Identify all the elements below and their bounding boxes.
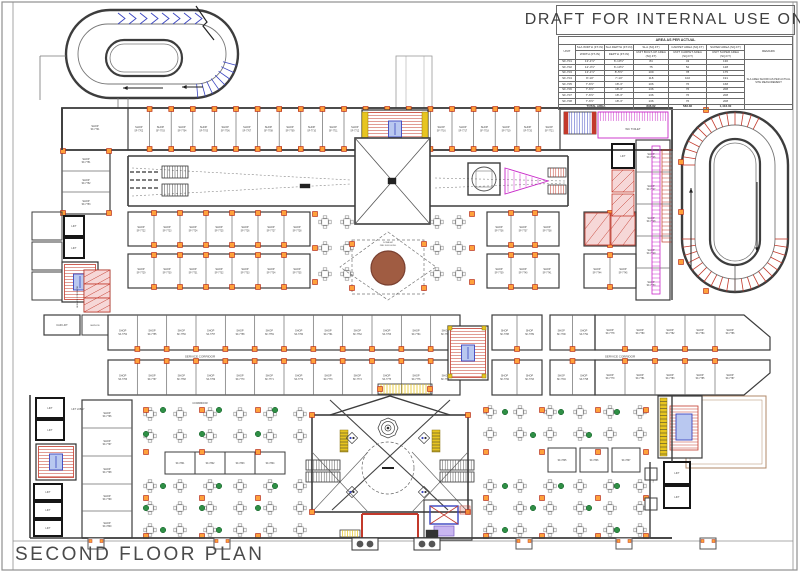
tiny-label: SF-7780 bbox=[636, 333, 646, 335]
column-marker bbox=[450, 107, 455, 112]
dining-table bbox=[608, 524, 612, 526]
column-marker bbox=[514, 147, 519, 152]
tiny-label: SF-7725 bbox=[215, 230, 225, 232]
dining-table bbox=[345, 252, 349, 254]
lower-atrium bbox=[306, 396, 474, 540]
dining-table bbox=[547, 431, 553, 437]
dining-table bbox=[584, 432, 586, 436]
dining-table bbox=[608, 416, 612, 418]
tiny-label: SF-7779 bbox=[606, 378, 616, 380]
tiny-label: SF-7798 bbox=[103, 472, 113, 474]
fixture-dot bbox=[349, 437, 351, 439]
tiny-label: LIFT bbox=[620, 155, 626, 158]
tiny-label: SF-7726 bbox=[241, 230, 251, 232]
tiny-label: SHOP bbox=[543, 267, 551, 271]
column-marker bbox=[282, 253, 287, 258]
fixture-dot bbox=[349, 491, 351, 493]
column-marker bbox=[596, 450, 601, 455]
tiny-label: SHOP bbox=[593, 267, 601, 271]
tiny-label: SHOP bbox=[148, 374, 156, 378]
dining-table bbox=[319, 246, 321, 250]
column-marker bbox=[200, 408, 205, 413]
tiny-label: LIFT LOBBY bbox=[72, 409, 85, 411]
column-marker bbox=[256, 285, 261, 290]
dining-table bbox=[638, 512, 642, 514]
column-marker bbox=[679, 160, 684, 165]
tiny-label: SHOP bbox=[200, 125, 208, 129]
tiny-label: LIFT bbox=[674, 472, 680, 475]
column-marker bbox=[135, 347, 140, 352]
dining-table bbox=[548, 416, 552, 418]
dining-table bbox=[234, 506, 236, 510]
bottom-left-tower: LIFTLIFTLIFT LOBBYLIFTLIFTLIFT bbox=[30, 395, 85, 538]
dining-table bbox=[456, 219, 462, 225]
tiny-label: SHOP bbox=[265, 125, 273, 129]
dining-table bbox=[208, 430, 212, 432]
column-marker bbox=[653, 359, 658, 364]
column-marker bbox=[194, 347, 199, 352]
dining-table bbox=[518, 480, 522, 482]
dining-table bbox=[297, 527, 303, 533]
tiny-label: SHOP bbox=[580, 374, 588, 378]
dining-table bbox=[608, 406, 612, 408]
planter bbox=[530, 432, 536, 438]
column-marker bbox=[169, 107, 174, 112]
dining-table bbox=[544, 506, 546, 510]
tiny-label: SF-7787 bbox=[726, 378, 736, 380]
column-marker bbox=[350, 242, 355, 247]
column-marker bbox=[223, 359, 228, 364]
dining-table bbox=[578, 416, 582, 418]
dining-table bbox=[484, 432, 486, 436]
tiny-label: SF-7776 bbox=[412, 379, 422, 381]
arrow-head bbox=[123, 86, 128, 90]
column-marker bbox=[370, 359, 375, 364]
column-marker bbox=[528, 540, 531, 543]
column-marker bbox=[144, 450, 149, 455]
dining-table bbox=[644, 484, 646, 488]
dining-table bbox=[608, 512, 612, 514]
dining-table bbox=[298, 440, 302, 442]
tiny-label: SHOP bbox=[330, 125, 338, 129]
column-marker bbox=[178, 243, 183, 248]
tiny-label: SHOP bbox=[91, 124, 99, 128]
bridge-outline bbox=[396, 56, 432, 108]
column-marker bbox=[340, 347, 345, 352]
tiny-label: SF-7764 bbox=[412, 334, 422, 336]
dining-table bbox=[323, 278, 327, 280]
arrow-head bbox=[182, 85, 187, 89]
tiny-label: SF-7701 bbox=[91, 129, 101, 131]
dining-table bbox=[578, 502, 582, 504]
tiny-label: SF-7763 bbox=[382, 334, 392, 336]
column-marker bbox=[256, 408, 261, 413]
dining-table bbox=[294, 434, 296, 438]
dining-table bbox=[524, 484, 526, 488]
dining-table bbox=[319, 272, 321, 276]
tiny-label: SHOP bbox=[178, 125, 186, 129]
stair-core bbox=[676, 414, 692, 440]
drawing-sheet: SHOPSF-7701SHOPSF-7702SHOPSF-7703SHOPSF-… bbox=[0, 0, 800, 573]
dining-table bbox=[304, 434, 306, 438]
dining-table bbox=[323, 242, 327, 244]
dining-table bbox=[298, 408, 302, 410]
tiny-label: SHOP bbox=[459, 125, 467, 129]
column-marker bbox=[277, 107, 282, 112]
column-marker bbox=[536, 147, 541, 152]
column-marker bbox=[644, 408, 649, 413]
dining-table bbox=[574, 484, 576, 488]
tiny-label: SF-7708 bbox=[264, 130, 274, 132]
ramp-chevron bbox=[118, 13, 125, 24]
tiny-label: SHOP bbox=[324, 374, 332, 378]
tiny-label: SHOP bbox=[519, 225, 527, 229]
dining-table bbox=[488, 480, 492, 482]
column-marker bbox=[683, 359, 688, 364]
column-marker bbox=[282, 285, 287, 290]
dining-table bbox=[351, 220, 353, 224]
column-marker bbox=[342, 147, 347, 152]
tiny-label: SHOP bbox=[324, 329, 332, 333]
column-marker bbox=[298, 147, 303, 152]
column-marker bbox=[608, 253, 613, 258]
tiny-label: SF-7797 bbox=[103, 444, 113, 446]
ramp-chevron bbox=[140, 13, 147, 24]
column-marker bbox=[608, 285, 613, 290]
tiny-label: SHOP bbox=[558, 374, 566, 378]
tiny-label: SHOP bbox=[215, 225, 223, 229]
dining-table bbox=[548, 524, 552, 526]
tiny-label: SHOP bbox=[82, 178, 90, 182]
dining-table bbox=[345, 226, 349, 228]
dining-table bbox=[267, 505, 273, 511]
tiny-label: SF-7709 bbox=[286, 130, 296, 132]
tiny-label: SHOP bbox=[696, 373, 704, 377]
tiny-label: SF-7720 bbox=[523, 130, 533, 132]
column-marker bbox=[540, 496, 545, 501]
column-marker bbox=[204, 285, 209, 290]
column-marker bbox=[190, 147, 195, 152]
column-marker bbox=[514, 107, 519, 112]
dining-table bbox=[323, 268, 327, 270]
dining-table bbox=[294, 484, 296, 488]
ramp-chevron bbox=[162, 13, 169, 24]
tiny-label: SF-7755 bbox=[148, 334, 158, 336]
column-marker bbox=[212, 107, 217, 112]
dining-table bbox=[514, 506, 516, 510]
dining-table bbox=[148, 480, 152, 482]
dining-table bbox=[554, 528, 556, 532]
dining-table bbox=[294, 412, 296, 416]
dining-table bbox=[323, 252, 327, 254]
tiny-label: SHOP bbox=[236, 374, 244, 378]
dining-table bbox=[298, 418, 302, 420]
column-marker bbox=[230, 285, 235, 290]
tiny-label: SF-7739 bbox=[495, 272, 505, 274]
dining-table bbox=[184, 434, 186, 438]
tiny-label: SF-7704 bbox=[178, 130, 188, 132]
dining-table bbox=[554, 484, 556, 488]
column-marker bbox=[277, 147, 282, 152]
dining-table bbox=[204, 484, 206, 488]
tiny-label: SF-7807 bbox=[622, 460, 632, 462]
dining-table bbox=[297, 433, 303, 439]
dining-table bbox=[174, 506, 176, 510]
tiny-label: SF-7718 bbox=[480, 130, 490, 132]
tiny-label: SF-7766 bbox=[118, 379, 128, 381]
dining-table bbox=[238, 534, 242, 536]
dining-table bbox=[517, 527, 523, 533]
stair-strip bbox=[482, 326, 486, 330]
tiny-label: SHOP bbox=[726, 373, 734, 377]
dining-table bbox=[294, 506, 296, 510]
column-marker bbox=[340, 359, 345, 364]
atrium-core bbox=[388, 178, 396, 184]
column-marker bbox=[596, 496, 601, 501]
dining-table bbox=[268, 502, 272, 504]
dining-table bbox=[578, 524, 582, 526]
tiny-label: LIFT bbox=[47, 429, 53, 432]
dining-table bbox=[237, 505, 243, 511]
tiny-label: SF-7753 bbox=[82, 204, 92, 206]
dining-table bbox=[268, 418, 272, 420]
tiny-label: SF-7756 bbox=[177, 334, 187, 336]
dining-table bbox=[178, 480, 182, 482]
column-marker bbox=[282, 211, 287, 216]
dining-table bbox=[214, 528, 216, 532]
dining-table bbox=[514, 484, 516, 488]
dining-table bbox=[244, 412, 246, 416]
area-cell: 1,416.00 bbox=[707, 104, 745, 110]
dining-table bbox=[544, 432, 546, 436]
dining-table bbox=[457, 278, 461, 280]
dining-table bbox=[518, 512, 522, 514]
fixture-dot bbox=[352, 437, 354, 439]
dining-table bbox=[608, 428, 612, 430]
dining-table bbox=[304, 484, 306, 488]
ramp-island-inner bbox=[110, 44, 178, 72]
shop-row bbox=[595, 315, 770, 350]
dining-table bbox=[208, 502, 212, 504]
dining-table bbox=[488, 512, 492, 514]
tiny-label: SF-7794 bbox=[557, 379, 567, 381]
post-circle bbox=[419, 541, 426, 548]
dining-table bbox=[298, 480, 302, 482]
tiny-label: SHOP bbox=[580, 329, 588, 333]
dining-table bbox=[607, 431, 613, 437]
dining-table bbox=[148, 502, 152, 504]
dining-table bbox=[574, 410, 576, 414]
column-marker bbox=[223, 347, 228, 352]
column-marker bbox=[147, 107, 152, 112]
dining-table bbox=[267, 527, 273, 533]
dining-table bbox=[638, 480, 642, 482]
planter bbox=[160, 483, 166, 489]
tiny-label: SHOP bbox=[137, 267, 145, 271]
column-marker bbox=[310, 413, 315, 418]
dining-table bbox=[463, 246, 465, 250]
dining-table bbox=[435, 252, 439, 254]
dining-table bbox=[634, 528, 636, 532]
dining-table bbox=[323, 216, 327, 218]
dining-table bbox=[578, 428, 582, 430]
tiny-label: LIFT bbox=[674, 496, 680, 499]
store bbox=[32, 272, 62, 300]
dining-table bbox=[608, 438, 612, 440]
dining-table bbox=[177, 483, 183, 489]
dining-table bbox=[207, 483, 213, 489]
tiny-label: SF-7703 bbox=[156, 130, 166, 132]
dining-table bbox=[238, 408, 242, 410]
store bbox=[32, 212, 62, 240]
area-cell: UNIT CARPET AREA (SQ.FT) bbox=[669, 50, 707, 59]
column-marker bbox=[493, 147, 498, 152]
dining-table bbox=[524, 506, 526, 510]
dining-table bbox=[638, 502, 642, 504]
tiny-label: SHOP bbox=[267, 267, 275, 271]
dining-table bbox=[207, 411, 213, 417]
dining-table bbox=[637, 483, 643, 489]
dining-table bbox=[148, 418, 152, 420]
dining-table bbox=[244, 506, 246, 510]
column-marker bbox=[320, 147, 325, 152]
dining-table bbox=[431, 220, 433, 224]
planter bbox=[199, 505, 205, 511]
dining-table bbox=[604, 528, 606, 532]
tiny-label: CORRIDOR bbox=[192, 401, 207, 405]
column-marker bbox=[342, 107, 347, 112]
dining-table bbox=[208, 418, 212, 420]
tiny-label: SF-7751 bbox=[82, 162, 92, 164]
rooms-outline bbox=[636, 140, 670, 300]
column-marker bbox=[533, 285, 538, 290]
column-marker bbox=[256, 496, 261, 501]
tiny-label: SF-7735 bbox=[293, 272, 303, 274]
tiny-label: SHOP bbox=[606, 328, 614, 332]
dining-table bbox=[607, 505, 613, 511]
dining-table bbox=[484, 484, 486, 488]
tiny-label: SF-7783 bbox=[666, 378, 676, 380]
dining-table bbox=[608, 480, 612, 482]
column-marker bbox=[230, 253, 235, 258]
dining-table bbox=[344, 219, 350, 225]
dining-table bbox=[554, 432, 556, 436]
dining-table bbox=[154, 528, 156, 532]
tiny-label: SHOP bbox=[383, 329, 391, 333]
column-marker bbox=[313, 280, 318, 285]
left-edge-upper: SHOPSF-7751SHOPSF-7752SHOPSF-7753LIFTLIF… bbox=[32, 149, 111, 335]
dining-table bbox=[456, 271, 462, 277]
tiny-label: SF-7784 bbox=[696, 333, 706, 335]
planter bbox=[614, 483, 620, 489]
column-marker bbox=[617, 540, 620, 543]
dining-table bbox=[297, 483, 303, 489]
dining-table bbox=[638, 438, 642, 440]
dining-table bbox=[453, 220, 455, 224]
column-marker bbox=[147, 147, 152, 152]
tiny-label: SHOP bbox=[215, 267, 223, 271]
dining-table bbox=[547, 483, 553, 489]
dining-table bbox=[322, 271, 328, 277]
tiny-label: SHOP bbox=[119, 329, 127, 333]
tiny-label: SF-7757 bbox=[206, 334, 216, 336]
column-marker bbox=[399, 347, 404, 352]
dining-table bbox=[237, 483, 243, 489]
column-marker bbox=[422, 242, 427, 247]
tiny-label: SHOP bbox=[501, 329, 509, 333]
tiny-label: SF-7781 bbox=[636, 378, 646, 380]
tiny-label: SF-7712 bbox=[350, 130, 360, 132]
area-remark: SLA AREA SHOWN AS PER ACTUAL SITE MEASUR… bbox=[745, 59, 793, 104]
escalator-wedge bbox=[505, 168, 548, 194]
tiny-label: SHOP bbox=[103, 521, 111, 525]
tiny-label: SHOP bbox=[558, 329, 566, 333]
dining-table bbox=[341, 246, 343, 250]
dining-table bbox=[244, 528, 246, 532]
dining-table bbox=[208, 408, 212, 410]
column-marker bbox=[215, 540, 218, 543]
dining-table bbox=[268, 430, 272, 432]
column-marker bbox=[713, 347, 718, 352]
entrance-post bbox=[352, 538, 378, 550]
dining-table bbox=[274, 528, 276, 532]
dining-table bbox=[577, 483, 583, 489]
bottom-right-tower: LIFTLIFTLIFT LOBBY bbox=[645, 396, 702, 510]
dining-table bbox=[207, 505, 213, 511]
dining-table bbox=[584, 484, 586, 488]
dining-table bbox=[637, 431, 643, 437]
dining-table bbox=[494, 528, 496, 532]
dining-table bbox=[319, 220, 321, 224]
dining-table bbox=[554, 506, 556, 510]
dining-table bbox=[514, 432, 516, 436]
tiny-label: SHOP bbox=[178, 329, 186, 333]
dining-table bbox=[514, 528, 516, 532]
planter bbox=[614, 409, 620, 415]
post-circle bbox=[429, 541, 436, 548]
dining-table bbox=[434, 245, 440, 251]
planter bbox=[586, 432, 592, 438]
stair-strip bbox=[660, 398, 667, 456]
tiny-label: LIFT bbox=[45, 509, 51, 512]
stair-strip bbox=[448, 374, 452, 378]
column-marker bbox=[540, 408, 545, 413]
tiny-label: SHOP bbox=[137, 225, 145, 229]
dining-table bbox=[578, 512, 582, 514]
planter bbox=[502, 483, 508, 489]
planter bbox=[216, 527, 222, 533]
dining-table bbox=[435, 278, 439, 280]
tiny-label: SF-7785 bbox=[696, 378, 706, 380]
tiny-label: SF-7804 bbox=[266, 463, 276, 465]
column-marker bbox=[422, 286, 427, 291]
planter bbox=[272, 407, 278, 413]
tiny-label: SHOP bbox=[119, 374, 127, 378]
dining-table bbox=[345, 242, 349, 244]
column-marker bbox=[230, 211, 235, 216]
arrow-head bbox=[689, 188, 693, 193]
tiny-label: SHOP bbox=[266, 329, 274, 333]
column-marker bbox=[313, 246, 318, 251]
dining-table bbox=[435, 216, 439, 218]
tiny-label: SHOP bbox=[546, 125, 554, 129]
column-marker bbox=[200, 496, 205, 501]
dining-table bbox=[638, 534, 642, 536]
dining-table bbox=[147, 483, 153, 489]
tiny-label: SHOP bbox=[526, 374, 534, 378]
dining-table bbox=[578, 490, 582, 492]
tiny-label: SHOP bbox=[726, 328, 734, 332]
